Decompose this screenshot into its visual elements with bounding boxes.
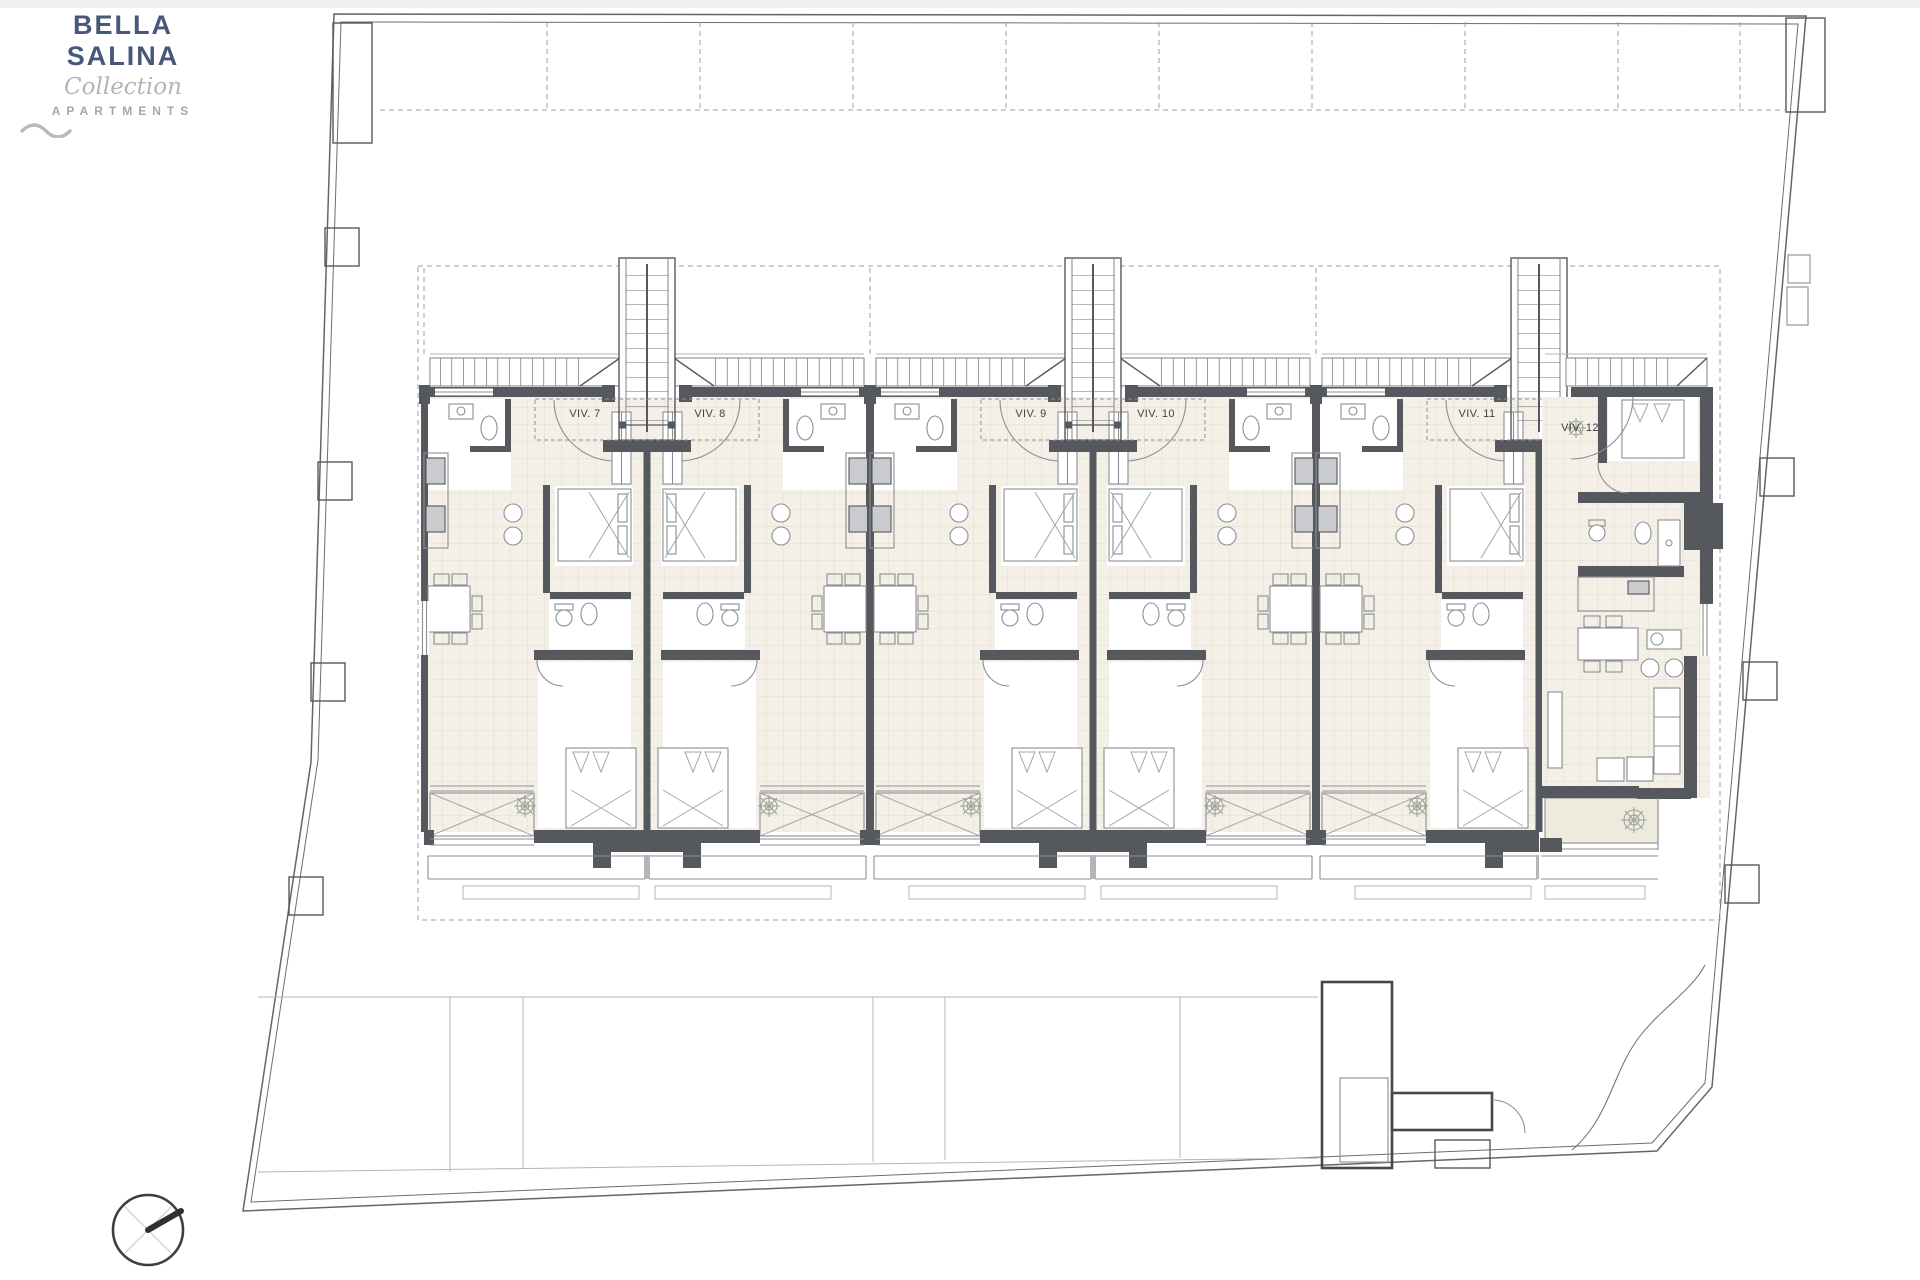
floor-plan-page: BELLA SALINA Collection APARTMENTS bbox=[0, 0, 1920, 1280]
unit-viv12 bbox=[1540, 354, 1723, 899]
end-wall-window bbox=[420, 601, 429, 655]
brand-logo: BELLA SALINA Collection APARTMENTS bbox=[16, 10, 230, 138]
unit-pair-viv9-viv10 bbox=[865, 258, 1321, 899]
unit-label-viv8: VIV. 8 bbox=[694, 408, 725, 420]
wave-squiggle-icon bbox=[16, 120, 76, 138]
unit-label-viv7: VIV. 7 bbox=[569, 408, 600, 420]
ground-floor-outline bbox=[258, 997, 1318, 1172]
parking-row bbox=[380, 22, 1786, 110]
logo-brand-text: BELLA SALINA bbox=[16, 10, 230, 72]
north-arrow bbox=[113, 1195, 183, 1265]
unit-label-viv9: VIV. 9 bbox=[1015, 408, 1046, 420]
unit-label-viv11: VIV. 11 bbox=[1458, 408, 1495, 420]
unit-label-viv12: VIV. 12 bbox=[1561, 422, 1599, 434]
unit-label-viv10: VIV. 10 bbox=[1137, 408, 1175, 420]
site-plan-drawing: VIV. 7 VIV. 8 VIV. 9 VIV. 10 VIV. 11 VIV… bbox=[0, 0, 1920, 1280]
unit-pair-viv7-viv8 bbox=[419, 258, 875, 899]
logo-apartments-text: APARTMENTS bbox=[16, 104, 230, 118]
logo-collection-text: Collection bbox=[16, 74, 230, 100]
service-structure bbox=[1322, 965, 1705, 1168]
page-top-strip bbox=[0, 0, 1920, 8]
